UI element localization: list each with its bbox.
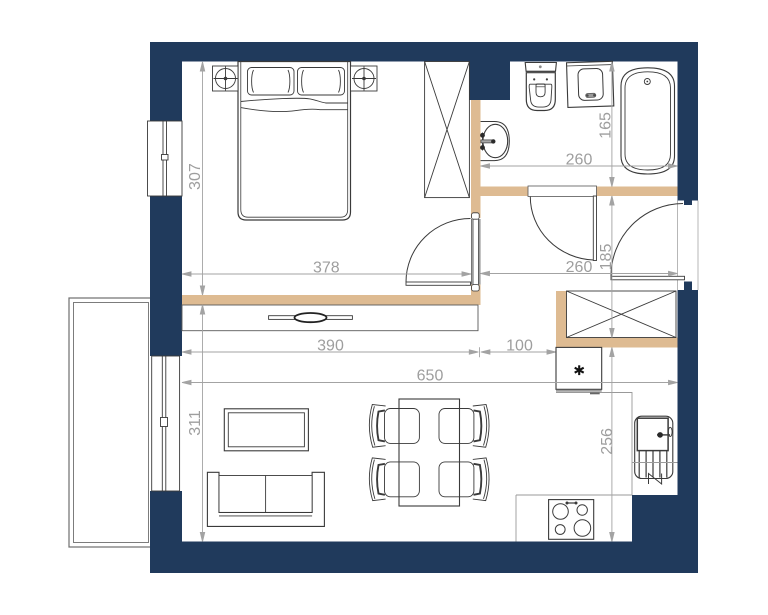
- svg-text:311: 311: [187, 410, 204, 436]
- svg-text:165: 165: [598, 112, 615, 139]
- svg-text:100: 100: [506, 337, 533, 354]
- svg-text:260: 260: [566, 151, 593, 168]
- svg-text:260: 260: [566, 259, 593, 276]
- svg-text:307: 307: [187, 163, 204, 190]
- svg-text:185: 185: [598, 244, 615, 271]
- svg-text:256: 256: [599, 428, 616, 455]
- svg-text:378: 378: [313, 259, 340, 276]
- svg-text:650: 650: [417, 368, 444, 385]
- svg-text:390: 390: [317, 337, 344, 354]
